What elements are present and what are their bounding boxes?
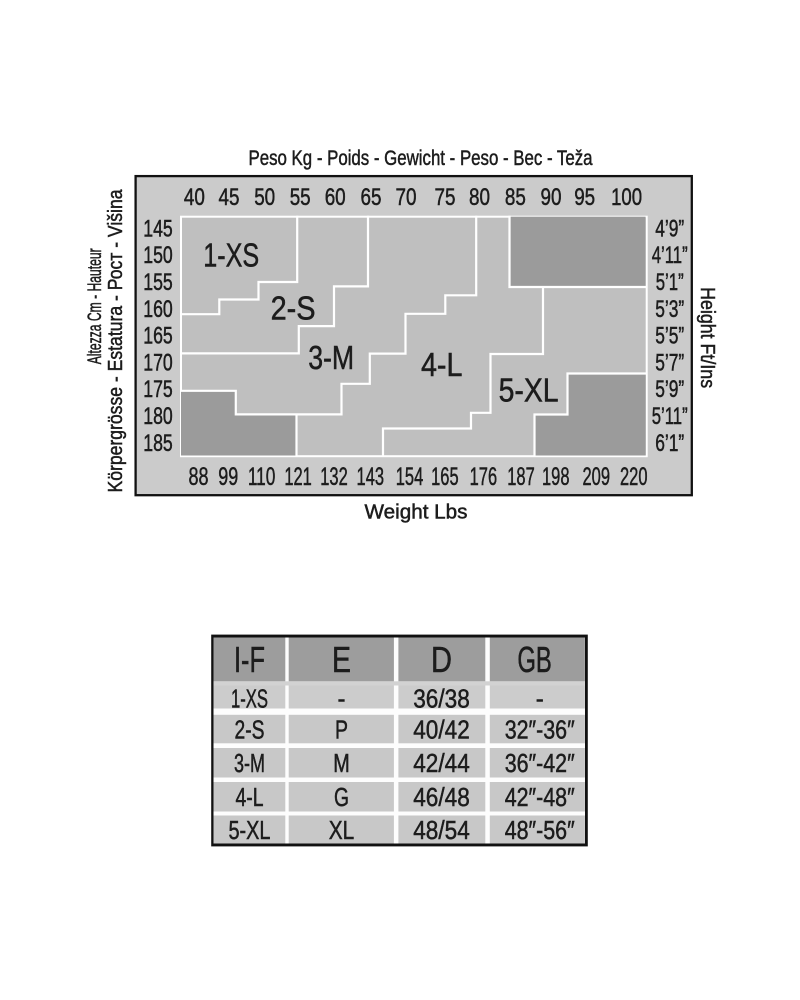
svg-text:42/44: 42/44 (413, 750, 470, 778)
svg-text:95: 95 (574, 184, 595, 211)
svg-text:170: 170 (143, 349, 173, 376)
svg-text:176: 176 (470, 463, 498, 491)
svg-text:70: 70 (396, 184, 417, 211)
svg-text:3-M: 3-M (308, 339, 354, 376)
svg-text:-: - (338, 686, 346, 714)
svg-text:3-M: 3-M (234, 750, 265, 778)
svg-text:4’11”: 4’11” (652, 242, 688, 269)
svg-text:180: 180 (143, 403, 173, 430)
svg-text:132: 132 (320, 463, 348, 491)
svg-text:185: 185 (143, 430, 173, 457)
svg-text:110: 110 (248, 463, 276, 491)
svg-text:165: 165 (431, 463, 459, 491)
svg-text:154: 154 (396, 463, 424, 491)
svg-text:Peso Kg - Poids - Gewicht - Pe: Peso Kg - Poids - Gewicht - Peso - Bec -… (249, 145, 594, 170)
svg-text:46/48: 46/48 (413, 784, 470, 812)
svg-text:M: M (333, 750, 350, 778)
svg-text:65: 65 (361, 184, 382, 211)
svg-text:60: 60 (325, 184, 346, 211)
svg-text:D: D (431, 640, 452, 680)
svg-text:85: 85 (505, 184, 526, 211)
svg-text:5’9”: 5’9” (655, 376, 684, 403)
svg-text:99: 99 (218, 463, 238, 491)
svg-text:5’3”: 5’3” (655, 296, 684, 323)
svg-text:80: 80 (469, 184, 490, 211)
svg-text:88: 88 (189, 463, 209, 491)
svg-text:I-F: I-F (234, 640, 265, 680)
svg-text:P: P (335, 716, 348, 744)
svg-text:90: 90 (541, 184, 562, 211)
svg-text:50: 50 (254, 184, 275, 211)
svg-text:1-XS: 1-XS (203, 236, 259, 273)
svg-text:143: 143 (357, 463, 385, 491)
svg-text:145: 145 (143, 215, 173, 242)
svg-text:36/38: 36/38 (413, 686, 470, 714)
svg-text:165: 165 (143, 323, 173, 350)
svg-text:E: E (332, 640, 351, 680)
svg-text:198: 198 (542, 463, 570, 491)
svg-text:Körpergrösse - Estatura - Рост: Körpergrösse - Estatura - Рост - Višina (104, 189, 127, 493)
svg-text:G: G (334, 784, 349, 812)
svg-text:5’7”: 5’7” (655, 349, 684, 376)
svg-text:5-XL: 5-XL (229, 817, 271, 845)
svg-text:40/42: 40/42 (413, 716, 470, 744)
svg-text:150: 150 (143, 242, 173, 269)
svg-text:121: 121 (284, 463, 312, 491)
svg-text:GB: GB (517, 640, 552, 680)
svg-text:45: 45 (219, 184, 240, 211)
svg-text:175: 175 (143, 376, 173, 403)
svg-text:36″-42″: 36″-42″ (505, 750, 575, 778)
svg-text:220: 220 (620, 463, 648, 491)
svg-text:100: 100 (611, 184, 642, 211)
svg-text:1-XS: 1-XS (231, 686, 268, 714)
svg-text:209: 209 (583, 463, 611, 491)
svg-text:Weight Lbs: Weight Lbs (365, 500, 468, 523)
svg-text:2-S: 2-S (271, 289, 316, 326)
svg-text:2-S: 2-S (235, 716, 265, 744)
svg-text:75: 75 (435, 184, 456, 211)
svg-text:XL: XL (329, 817, 355, 845)
svg-text:160: 160 (143, 296, 173, 323)
svg-text:4-L: 4-L (236, 784, 264, 812)
svg-text:5’11”: 5’11” (652, 403, 688, 430)
svg-text:5’5”: 5’5” (655, 323, 684, 350)
svg-text:4’9”: 4’9” (655, 215, 684, 242)
svg-text:-: - (536, 686, 544, 714)
svg-text:40: 40 (184, 184, 205, 211)
svg-text:6’1”: 6’1” (655, 430, 684, 457)
svg-text:5’1”: 5’1” (656, 269, 684, 296)
svg-text:187: 187 (507, 463, 535, 491)
svg-text:5-XL: 5-XL (499, 372, 559, 409)
svg-text:4-L: 4-L (421, 346, 463, 383)
svg-text:32″-36″: 32″-36″ (505, 716, 575, 744)
svg-text:42″-48″: 42″-48″ (505, 784, 575, 812)
svg-text:Height Ft/Ins: Height Ft/Ins (696, 287, 719, 388)
svg-text:155: 155 (143, 269, 173, 296)
svg-text:48″-56″: 48″-56″ (505, 817, 575, 845)
svg-text:48/54: 48/54 (413, 817, 470, 845)
svg-text:55: 55 (290, 184, 311, 211)
